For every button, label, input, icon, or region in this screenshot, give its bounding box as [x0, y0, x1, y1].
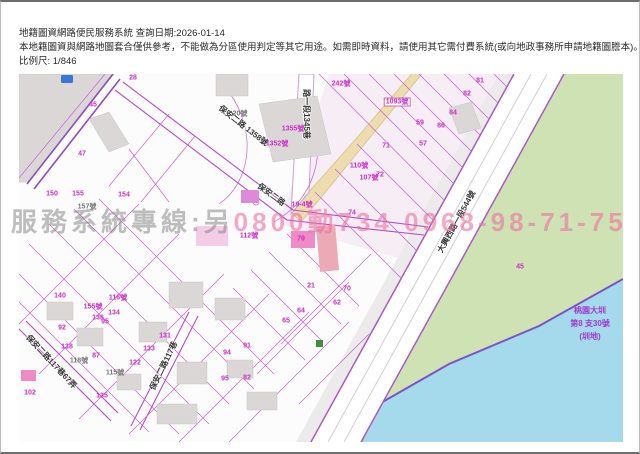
parcel-label: 91: [243, 343, 251, 350]
parcel-label: 71: [382, 143, 390, 150]
parcel-label: 118號: [70, 358, 88, 365]
parcel-label: 87: [92, 353, 100, 360]
parcel-label: 45: [89, 102, 97, 109]
parcel-label: 102: [24, 390, 36, 397]
parcel-label: 140: [54, 293, 66, 300]
cadastral-map[interactable]: 保安二路 1358號保安二路路一段1345巷大興西路一段544號保安二路117巷…: [19, 74, 623, 442]
canal-label-line3: (圳地): [579, 333, 600, 341]
map-scale-label: 比例尺: 1/846: [19, 53, 77, 67]
parcel-label: 65: [282, 318, 290, 325]
parcel-label: 150: [46, 191, 58, 198]
parcel-label: 79: [297, 236, 305, 243]
parcel-label: 64: [297, 308, 305, 315]
parcel-label: 1352號: [266, 141, 289, 148]
parcel-label: 82: [463, 91, 471, 98]
parcel-label: 19-4號: [291, 202, 312, 209]
system-title-and-query-date: 地籍圖資網路便民服務系統 查詢日期:2026-01-14: [19, 25, 225, 39]
parcel-label: 47: [78, 151, 86, 158]
parcel-label: 82: [243, 375, 251, 382]
parcel-label: 134: [108, 310, 120, 317]
parcel-label: 110號: [350, 163, 368, 170]
parcel-label: 155: [72, 191, 84, 198]
parcel-label: 133: [143, 346, 155, 353]
page-root: 地籍圖資網路便民服務系統 查詢日期:2026-01-14 本地籍圖資與網路地圖套…: [0, 0, 640, 454]
parcel-label: 1093號: [384, 98, 411, 107]
parcel-label: 45: [516, 264, 524, 271]
parcel-label: 84: [449, 110, 457, 117]
parcel-label: 92: [58, 325, 66, 332]
parcel-label: 138: [61, 344, 73, 351]
parcel-label: 1355號: [282, 126, 305, 133]
parcel-label: 95: [101, 319, 109, 326]
road-label-daxing-w-rd-544: 大興西路一段544號: [437, 190, 478, 255]
parcel-label: 131: [159, 333, 171, 340]
parcel-label: 59: [416, 120, 424, 127]
parcel-label: 155號: [84, 304, 103, 311]
parcel-label: 135: [96, 393, 108, 400]
parcel-label: 86: [437, 123, 445, 130]
parcel-label: 115號: [106, 370, 124, 377]
parcel-label: 20號: [233, 111, 248, 118]
parcel-label: 95: [221, 376, 229, 383]
parcel-label: 72: [376, 172, 384, 179]
map-labels-layer: 保安二路 1358號保安二路路一段1345巷大興西路一段544號保安二路117巷…: [19, 74, 623, 442]
parcel-label: 57: [419, 141, 427, 148]
parcel-label: 157號: [78, 204, 97, 211]
parcel-label: 74: [348, 210, 356, 217]
parcel-label: 21: [307, 283, 315, 290]
parcel-label: 28: [129, 75, 137, 82]
road-label-baoan-2rd: 保安二路: [256, 182, 287, 207]
parcel-label: 112號: [240, 233, 258, 240]
parcel-label: 62: [333, 300, 341, 307]
parcel-label: 242號: [332, 81, 351, 88]
parcel-label: 81: [476, 78, 484, 85]
parcel-label: 122: [129, 360, 141, 367]
disclaimer-text: 本地籍圖資與網路地圖套合僅供參考，不能做為分區使用判定等其它用途。如需即時資料，…: [19, 39, 640, 53]
canal-label-line1: 桃園大圳: [574, 307, 606, 315]
parcel-label: 94: [223, 350, 231, 357]
parcel-label: 154: [118, 192, 130, 199]
parcel-label: 70: [343, 286, 351, 293]
canal-label-line2: 第8 支30號: [570, 320, 610, 328]
parcel-label: 116號: [109, 295, 127, 302]
